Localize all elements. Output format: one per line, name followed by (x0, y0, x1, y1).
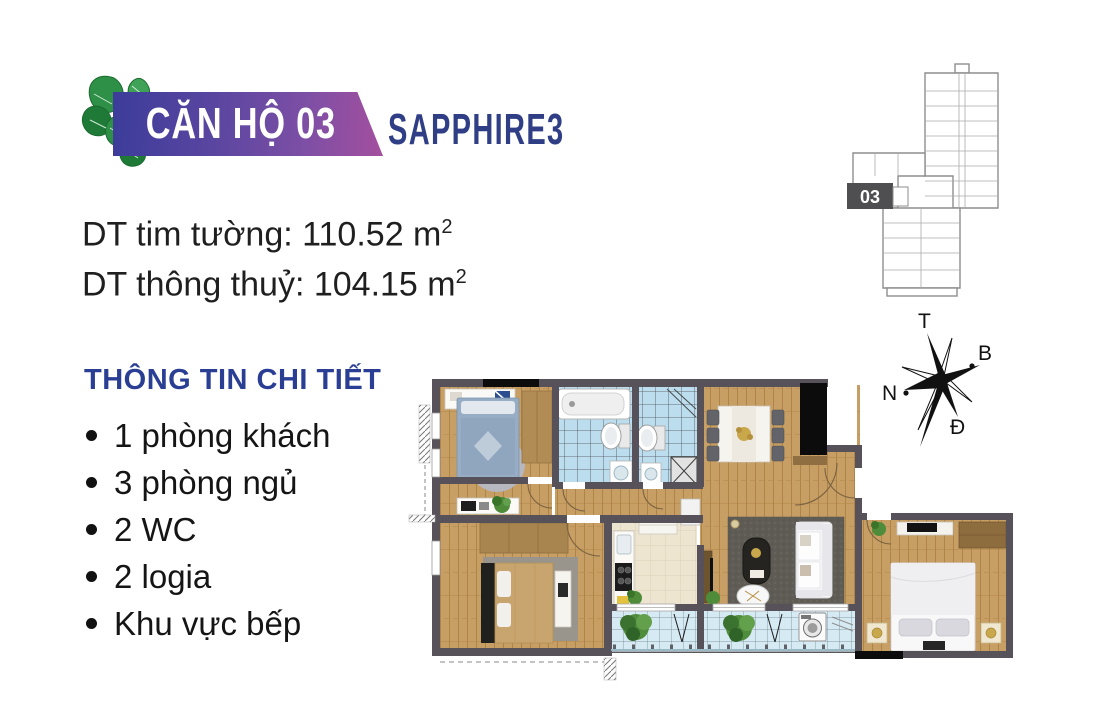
list-item: Khu vực bếp (86, 600, 331, 647)
bed-double (891, 563, 975, 651)
area-info: DT tim tường: 110.52 m2 DT thông thuỷ: 1… (82, 206, 467, 307)
list-item: 2 WC (86, 506, 331, 553)
bed-headboard (481, 563, 495, 643)
bed-single (457, 398, 519, 478)
tv (710, 558, 713, 596)
tv (907, 523, 937, 532)
details-list: 1 phòng khách 3 phòng ngủ 2 WC 2 logia K… (86, 412, 331, 647)
hall-console (457, 496, 519, 514)
bed-double (495, 563, 553, 643)
sink-vanity (610, 461, 632, 485)
window-lintel (483, 379, 539, 387)
window (432, 413, 440, 439)
compass-label-west: T (918, 312, 931, 333)
window (432, 449, 440, 477)
details-heading: THÔNG TIN CHI TIẾT (84, 364, 381, 397)
dresser (555, 571, 571, 627)
site-map-unit-next (893, 187, 908, 206)
list-item: 3 phòng ngủ (86, 459, 331, 506)
title-banner: CĂN HỘ 03 (113, 92, 383, 156)
door-gap (528, 477, 552, 484)
building-site-map: 03 (835, 58, 1035, 308)
nightstand (867, 623, 887, 643)
list-item: 2 logia (86, 553, 331, 600)
unit-title: CĂN HỘ 03 (113, 92, 324, 156)
entry-cabinet (793, 456, 827, 465)
wardrobe (480, 523, 568, 553)
area-gross: DT tim tường: 110.52 m2 (82, 206, 467, 256)
window (432, 541, 440, 575)
area-net: DT thông thuỷ: 104.15 m2 (82, 256, 467, 306)
nightstand (981, 623, 1001, 643)
room-bedroom-2 (480, 523, 578, 643)
shaft (800, 383, 827, 455)
dining-table (718, 406, 770, 462)
door-gap (563, 482, 585, 489)
coffee-table (743, 538, 770, 584)
bathtub (558, 389, 630, 419)
apartment-floor-plan (395, 365, 1075, 705)
sink-vanity (641, 463, 661, 485)
entry-door-gap (855, 468, 862, 498)
sofa (796, 522, 832, 598)
door-gap (867, 513, 891, 520)
list-item: 1 phòng khách (86, 412, 331, 459)
site-map-lower-wing (883, 208, 960, 288)
site-map-top-notch (955, 64, 969, 73)
plant (706, 591, 720, 605)
brochure-page: CĂN HỘ 03 SAPPHIRE3 DT tim tường: 110.52… (0, 0, 1102, 727)
toilet (601, 423, 630, 449)
window-lintel (855, 651, 903, 659)
toilet (637, 425, 665, 451)
site-map-upper-wing (925, 73, 998, 208)
site-map-bottom-notch (887, 288, 957, 296)
door-gap (567, 515, 600, 523)
floor-lamp (731, 520, 739, 528)
project-name: SAPPHIRE3 (388, 105, 564, 155)
site-map-unit-label: 03 (860, 187, 880, 207)
shower-door (671, 457, 697, 485)
door-gap (643, 482, 663, 489)
washing-machine (799, 613, 826, 641)
compass-label-north: B (978, 342, 992, 365)
